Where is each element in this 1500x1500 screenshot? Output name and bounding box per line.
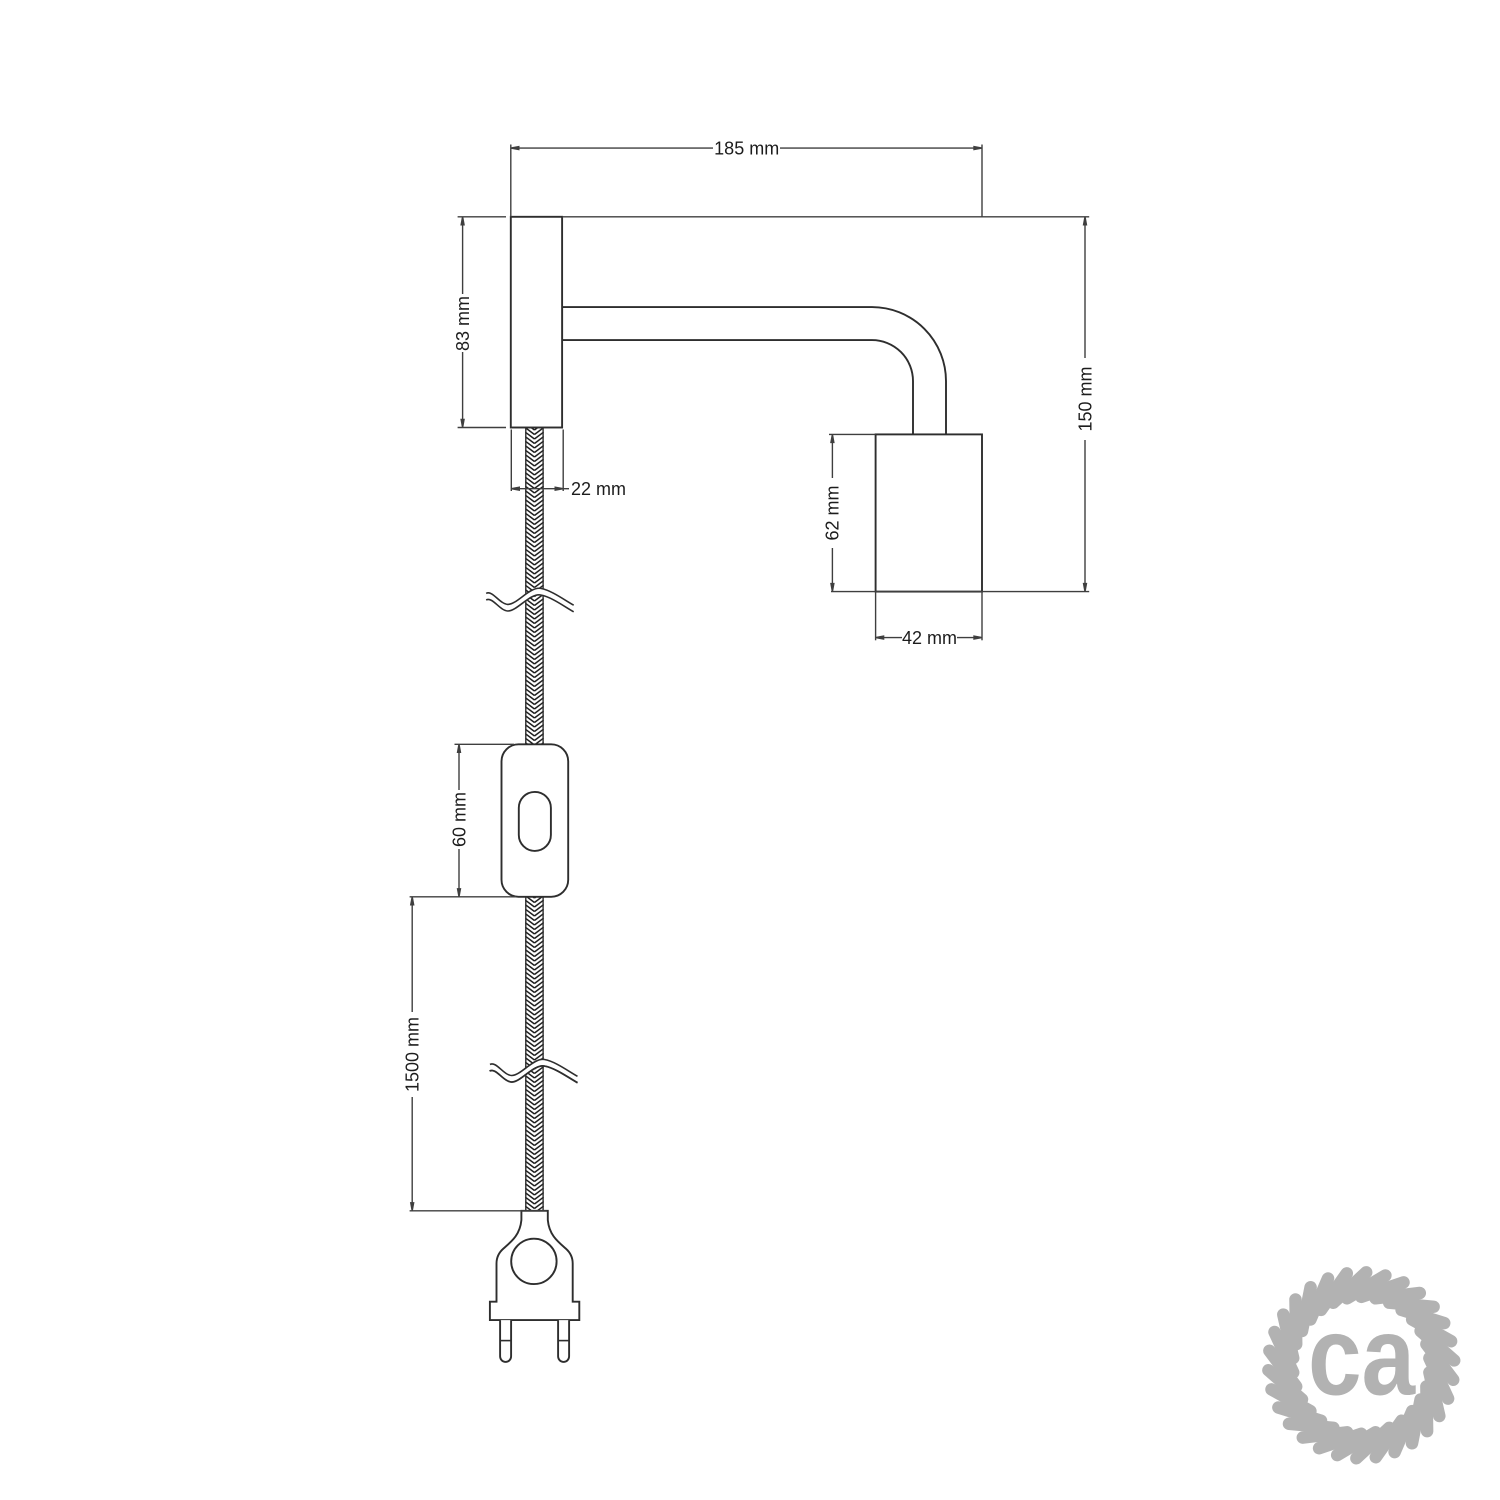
svg-text:185 mm: 185 mm bbox=[714, 138, 779, 158]
svg-text:42 mm: 42 mm bbox=[902, 628, 957, 648]
svg-text:83 mm: 83 mm bbox=[453, 296, 473, 351]
svg-text:22 mm: 22 mm bbox=[571, 479, 626, 499]
svg-text:ca: ca bbox=[1308, 1294, 1416, 1419]
svg-text:1500 mm: 1500 mm bbox=[403, 1017, 423, 1092]
svg-text:62 mm: 62 mm bbox=[823, 485, 843, 540]
svg-text:150 mm: 150 mm bbox=[1075, 366, 1095, 431]
svg-text:60 mm: 60 mm bbox=[449, 792, 469, 847]
